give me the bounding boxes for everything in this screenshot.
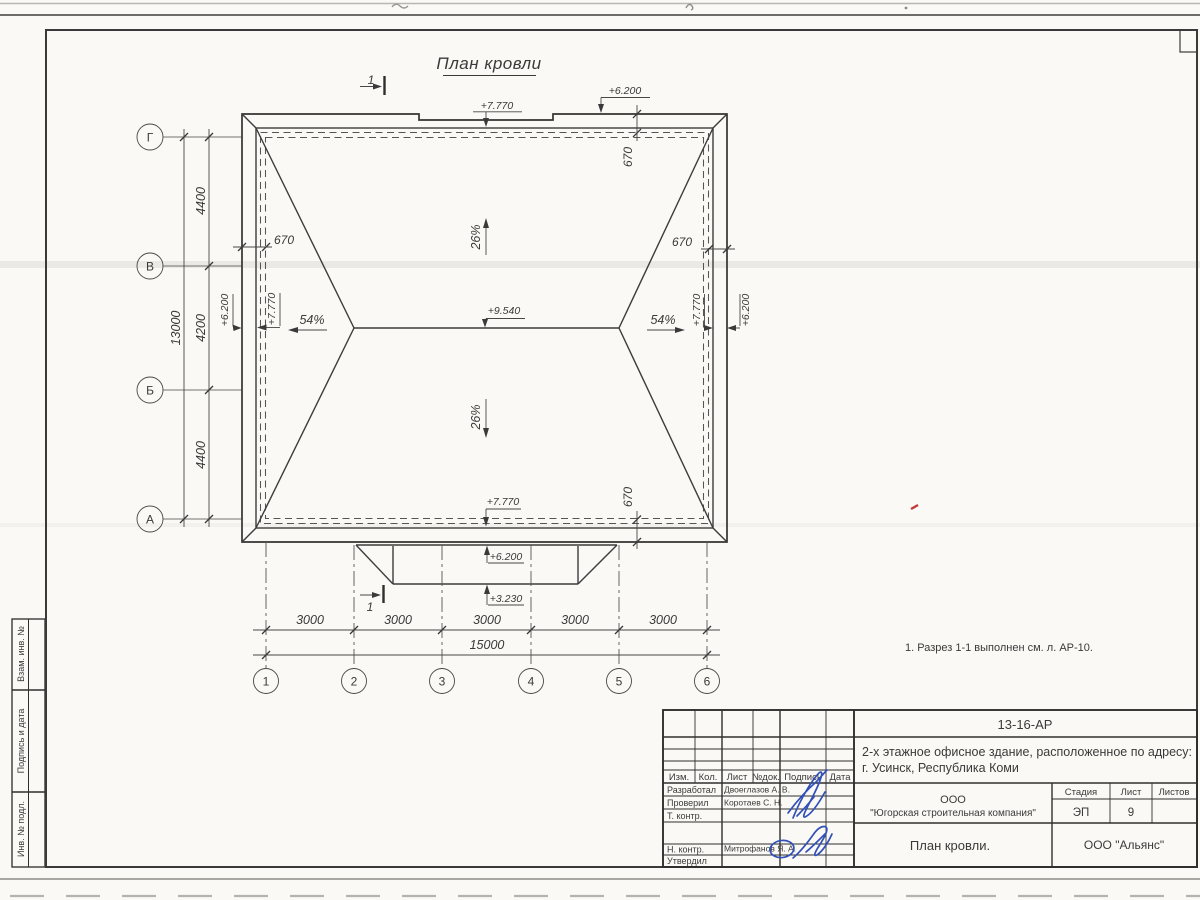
red-pen-mark: [911, 505, 918, 509]
dim-col-total: 15000: [470, 638, 505, 652]
roof-plan: [242, 114, 727, 542]
dim-row-seg-2: 4200: [194, 314, 208, 342]
overhang-dimensions: 670 670 670 670: [233, 105, 735, 549]
corner-format-box: [1180, 30, 1197, 52]
dim-col-seg-3: 3000: [473, 613, 501, 627]
stamp-project-line2: г. Усинск, Республика Коми: [862, 761, 1019, 775]
roof-plan-sheet-svg: Взам. инв. № Подпись и дата Инв. № подл.…: [0, 0, 1200, 900]
stamp-col-kol: Кол.: [699, 772, 718, 783]
slope-hip-right: 54%: [650, 313, 675, 327]
stamp-drawing-name: План кровли.: [910, 838, 990, 853]
dim-col-seg-2: 3000: [384, 613, 412, 627]
dim-overhang: 670: [621, 487, 635, 507]
dim-overhang: 670: [672, 235, 692, 249]
axis-bubble-g: Г: [147, 131, 154, 145]
left-axes-and-dims: 4400 4200 4400 13000 Г В Б А: [137, 124, 242, 532]
stamp-project-line1: 2-х этажное офисное здание, расположенно…: [862, 745, 1192, 759]
stamp-company-line2: "Югорская строительная компания": [870, 808, 1036, 819]
stamp-stage-value: ЭП: [1073, 807, 1090, 819]
stamp-company-line1: ООО: [940, 794, 966, 806]
section-label: 1: [367, 600, 374, 614]
stamp-role-approved: Утвердил: [667, 856, 707, 866]
elev-parapet-top: +6.200: [609, 85, 642, 97]
stamp-col-ndok: №док.: [752, 772, 780, 783]
stamp-role-tcontr: Т. контр.: [667, 811, 702, 821]
title-block: Изм. Кол. Лист №док. Подпись Дата Разраб…: [663, 710, 1197, 867]
axis-bubble-5: 5: [616, 675, 623, 689]
axis-bubble-v: В: [146, 260, 154, 274]
slope-main-bottom: 26%: [469, 404, 483, 430]
stamp-role-checked: Проверил: [667, 798, 708, 808]
dim-col-seg-4: 3000: [561, 613, 589, 627]
section-mark-top: 1: [360, 73, 385, 95]
stamp-org-name: ООО "Альянс": [1084, 838, 1164, 852]
elev-eave-bottom: +7.770: [487, 496, 520, 508]
axis-bubble-4: 4: [528, 675, 535, 689]
stamp-name-ncontr: Митрофанов Я. А.: [724, 844, 796, 854]
side-strip: Взам. инв. № Подпись и дата Инв. № подл.: [12, 619, 45, 867]
elev-ridge: +9.540: [488, 305, 521, 317]
strip-label-vzam: Взам. инв. №: [16, 626, 26, 682]
elev-eave-top: +7.770: [481, 100, 514, 112]
drawing-title: План кровли: [436, 54, 541, 76]
dim-col-seg-1: 3000: [296, 613, 324, 627]
page-title: План кровли: [436, 54, 541, 73]
dim-row-total: 13000: [169, 311, 183, 346]
dim-overhang: 670: [621, 147, 635, 167]
strip-label-podpis: Подпись и дата: [16, 709, 26, 774]
axis-bubble-3: 3: [439, 675, 446, 689]
dim-col-seg-5: 3000: [649, 613, 677, 627]
slope-hip-left: 54%: [299, 313, 324, 327]
stamp-stage-label: Стадия: [1065, 787, 1097, 798]
dim-row-seg-1: 4400: [194, 187, 208, 215]
elev-parapet-right: +6.200: [740, 294, 752, 327]
elev-parapet-left: +6.200: [219, 294, 231, 327]
bottom-axes-and-dims: 3000 3000 3000 3000 3000 15000 1 2 3 4 5…: [253, 542, 720, 694]
stamp-name-checked: Коротаев С. Н.: [724, 798, 782, 808]
elev-eave-left: +7.770: [266, 293, 278, 326]
strip-label-inv: Инв. № подл.: [16, 801, 26, 857]
scanned-drawing-sheet: Взам. инв. № Подпись и дата Инв. № подл.…: [0, 0, 1200, 900]
stamp-role-ncontr: Н. контр.: [667, 845, 704, 855]
axis-bubble-6: 6: [704, 675, 711, 689]
axis-bubble-a: А: [146, 513, 154, 527]
stamp-sheets-label: Листов: [1159, 787, 1190, 798]
stamp-col-data: Дата: [829, 772, 851, 783]
stamp-col-list: Лист: [727, 772, 748, 783]
stamp-col-izm: Изм.: [669, 772, 689, 783]
slope-main-top: 26%: [469, 224, 483, 250]
stamp-name-developed: Двоеглазов А. В.: [724, 785, 790, 795]
dim-row-seg-3: 4400: [194, 441, 208, 469]
axis-bubble-2: 2: [351, 675, 358, 689]
elev-canopy: +3.230: [490, 593, 523, 605]
stamp-sheet-value: 9: [1128, 807, 1134, 819]
elev-eave-right: +7.770: [691, 294, 703, 327]
axis-bubble-b: Б: [146, 384, 154, 398]
elev-parapet-canopy: +6.200: [490, 551, 523, 563]
section-mark-bottom: 1: [360, 585, 384, 614]
stamp-doc-number: 13-16-АР: [998, 717, 1053, 732]
drawing-note: 1. Разрез 1-1 выполнен см. л. АР-10.: [905, 642, 1093, 654]
stamp-sheet-label: Лист: [1121, 787, 1142, 798]
axis-bubble-1: 1: [263, 675, 270, 689]
dim-overhang: 670: [274, 233, 294, 247]
stamp-role-developed: Разработал: [667, 785, 716, 795]
